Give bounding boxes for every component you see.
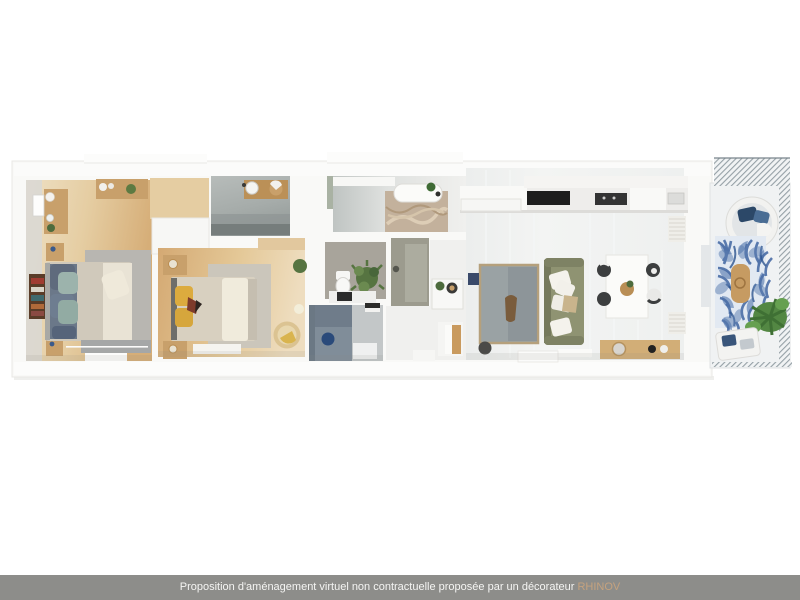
svg-text:Proposition d'aménagement virt: Proposition d'aménagement virtuel non co… <box>180 581 621 593</box>
